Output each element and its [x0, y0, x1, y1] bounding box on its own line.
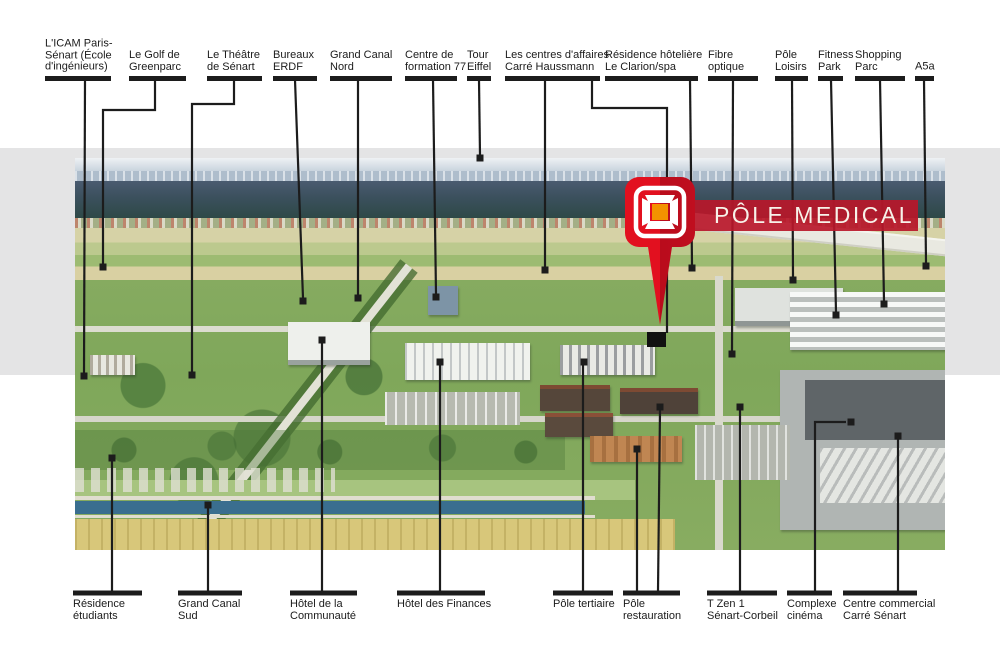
label-residence-etudiants: Résidenceétudiants — [73, 599, 125, 622]
label-tour-eiffel: TourEiffel — [467, 50, 491, 73]
label-pole-restauration: Pôlerestauration — [623, 599, 681, 622]
photo-mall-roof — [805, 380, 945, 440]
label-complexe-cinema: Complexecinéma — [787, 599, 837, 622]
photo-wheat-field — [75, 519, 675, 550]
photo-building-restauration — [590, 436, 682, 462]
label-pole-tertiaire: Pôle tertiaire — [553, 599, 615, 611]
photo-canal-path — [75, 496, 595, 500]
photo-sky — [75, 158, 945, 171]
label-golf-greenparc: Le Golf deGreenparc — [129, 50, 181, 73]
photo-canal — [75, 501, 585, 514]
label-fitness-park: FitnessPark — [818, 50, 853, 73]
label-bureaux-erdf: BureauxERDF — [273, 50, 314, 73]
photo-building-haussmann — [620, 388, 698, 414]
label-clarion-spa: Résidence hôtelièreLe Clarion/spa — [605, 50, 702, 73]
photo-building-tertiaire — [560, 345, 655, 375]
photo-parking — [695, 425, 790, 480]
poster: PÔLE MEDICAL L'ICAM Paris-Sénart (Écoled… — [0, 0, 1000, 667]
photo-building-haussmann — [545, 413, 613, 437]
photo-building-communaute — [288, 322, 370, 365]
photo-building-finances — [405, 343, 530, 380]
label-hotel-communaute: Hôtel de laCommunauté — [290, 599, 356, 622]
photo-housing — [90, 355, 135, 375]
photo-building-haussmann — [540, 385, 610, 411]
label-centre-commercial: Centre commercialCarré Sénart — [843, 599, 935, 622]
label-hotel-finances: Hôtel des Finances — [397, 599, 491, 611]
label-a5a: A5a — [915, 62, 935, 74]
photo-planting-rows — [75, 468, 335, 492]
callout-line-tour-eiffel — [479, 80, 480, 155]
photo-building-formation77 — [428, 286, 458, 315]
label-grand-canal-sud: Grand CanalSud — [178, 599, 240, 622]
label-theatre-senart: Le Théâtrede Sénart — [207, 50, 260, 73]
label-centre-formation-77: Centre deformation 77 — [405, 50, 466, 73]
photo-tree-band — [75, 430, 565, 470]
photo-road — [715, 276, 723, 550]
label-t-zen-1: T Zen 1Sénart-Corbeil — [707, 599, 778, 622]
photo-parking — [385, 392, 520, 425]
photo-canal-path — [75, 515, 595, 518]
photo-distant-city — [75, 171, 945, 181]
photo-mall-roof — [820, 448, 945, 503]
map-pin-icon — [622, 177, 698, 331]
label-shopping-parc: ShoppingParc — [855, 50, 902, 73]
photo-mall-north — [790, 292, 945, 350]
label-icam: L'ICAM Paris-Sénart (Écoled'ingénieurs) — [45, 39, 113, 74]
label-carre-haussmann: Les centres d'affairesCarré Haussmann — [505, 50, 609, 73]
label-fibre-optique: Fibreoptique — [708, 50, 744, 73]
label-grand-canal-nord: Grand CanalNord — [330, 50, 392, 73]
label-pole-loisirs: PôleLoisirs — [775, 50, 807, 73]
